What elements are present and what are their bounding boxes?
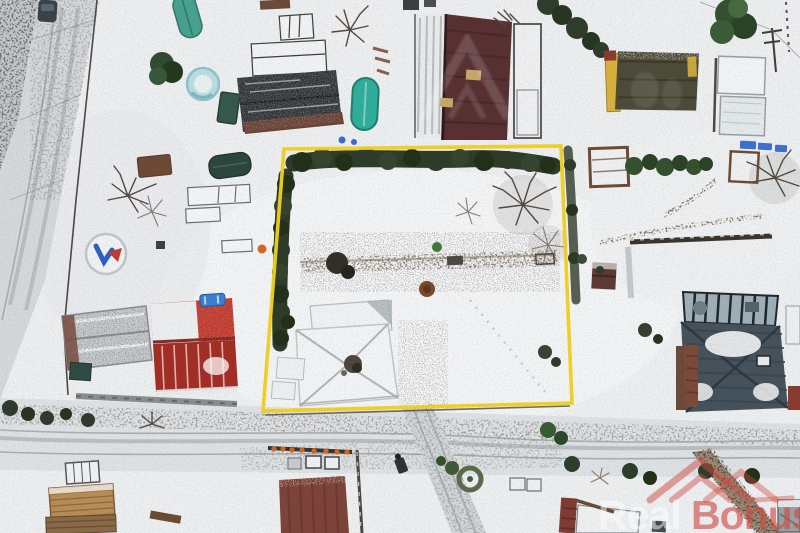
aerial-photo: Real Bonus xyxy=(0,0,800,533)
photo-grain xyxy=(0,0,800,533)
watermark-text: Real Bonus xyxy=(598,492,800,533)
